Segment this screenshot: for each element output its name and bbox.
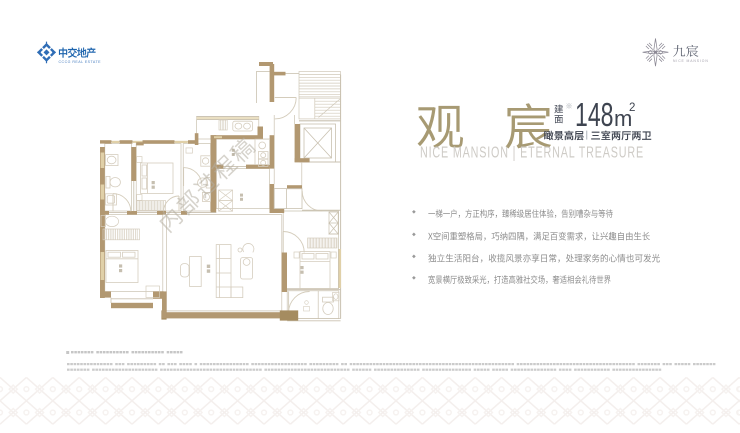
svg-text:NICE MANSION: NICE MANSION — [673, 59, 709, 63]
svg-text:NICE MANSION | ETERNAL TREASUR: NICE MANSION | ETERNAL TREASURE — [420, 145, 644, 162]
svg-text:148: 148 — [575, 96, 614, 133]
svg-text:CCCG REAL ESTATE: CCCG REAL ESTATE — [59, 60, 102, 64]
svg-text:2: 2 — [629, 102, 635, 114]
